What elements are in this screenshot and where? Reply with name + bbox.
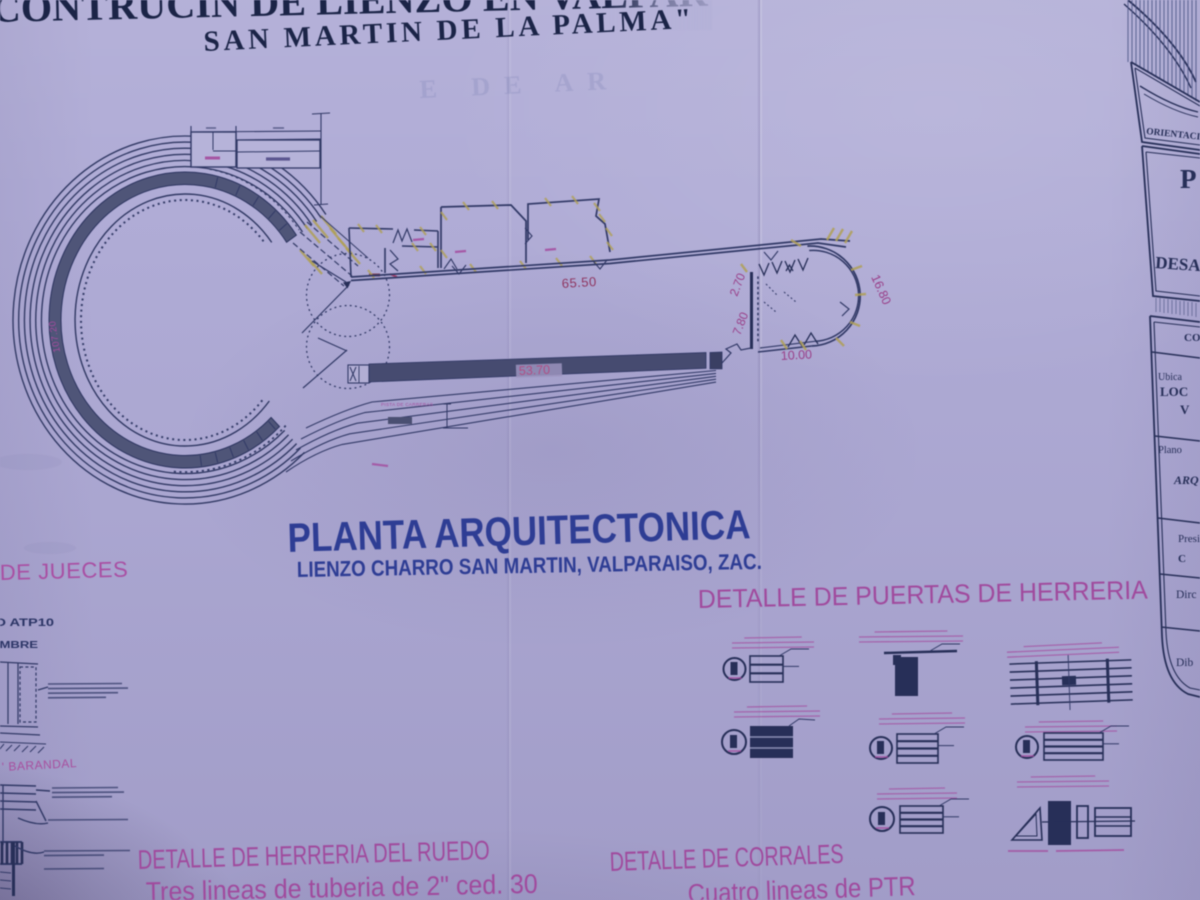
svg-text:ʹ BARANDAL: ʹ BARANDAL: [1, 756, 77, 774]
svg-text:53.70: 53.70: [519, 363, 551, 378]
svg-text:Ubica: Ubica: [1158, 372, 1182, 383]
svg-text:UMBRE: UMBRE: [0, 639, 38, 651]
svg-text:Dib: Dib: [1176, 657, 1194, 669]
svg-text:ORIENTACI: ORIENTACI: [1146, 127, 1200, 143]
svg-text:PISTA DE CARRERAS: PISTA DE CARRERAS: [381, 402, 433, 407]
svg-text:DESA: DESA: [1155, 253, 1200, 275]
svg-text:Tres lineas de tuberia de: Tres lineas de tuberia de 2" ced. 30: [145, 869, 538, 900]
svg-text:Plano: Plano: [1158, 445, 1182, 456]
svg-text:Presi: Presi: [1178, 533, 1200, 545]
svg-text:2.70: 2.70: [727, 271, 749, 298]
svg-text:Cuatro lineas de PTR: Cuatro lineas de PTR: [687, 871, 916, 900]
svg-text:ARQ: ARQ: [1173, 473, 1199, 487]
svg-text:CO: CO: [1184, 332, 1200, 344]
svg-text:TO ATP10: TO ATP10: [0, 617, 54, 629]
svg-text:Dirc: Dirc: [1176, 589, 1196, 601]
svg-text:16.80: 16.80: [868, 273, 894, 307]
svg-text:DETALLE DE HERRERIA DEL RU: DETALLE DE HERRERIA DEL RUEDO: [137, 835, 490, 875]
svg-text:7.80: 7.80: [730, 310, 752, 337]
svg-text:DE JUECES: DE JUECES: [0, 557, 128, 585]
svg-text:DETALLE DE PUERTAS DE HERR: DETALLE DE PUERTAS DE HERRERIA: [697, 575, 1148, 614]
svg-text:E DE AR: E DE AR: [419, 66, 621, 104]
svg-text:10.00: 10.00: [780, 347, 812, 363]
svg-text:V: V: [1180, 402, 1190, 417]
svg-text:LOC: LOC: [1160, 384, 1188, 399]
svg-text:P: P: [1180, 164, 1197, 194]
svg-text:DETALLE DE CORRALES: DETALLE DE CORRALES: [609, 839, 844, 877]
svg-text:C: C: [1178, 553, 1186, 565]
svg-text:65.50: 65.50: [561, 274, 597, 291]
